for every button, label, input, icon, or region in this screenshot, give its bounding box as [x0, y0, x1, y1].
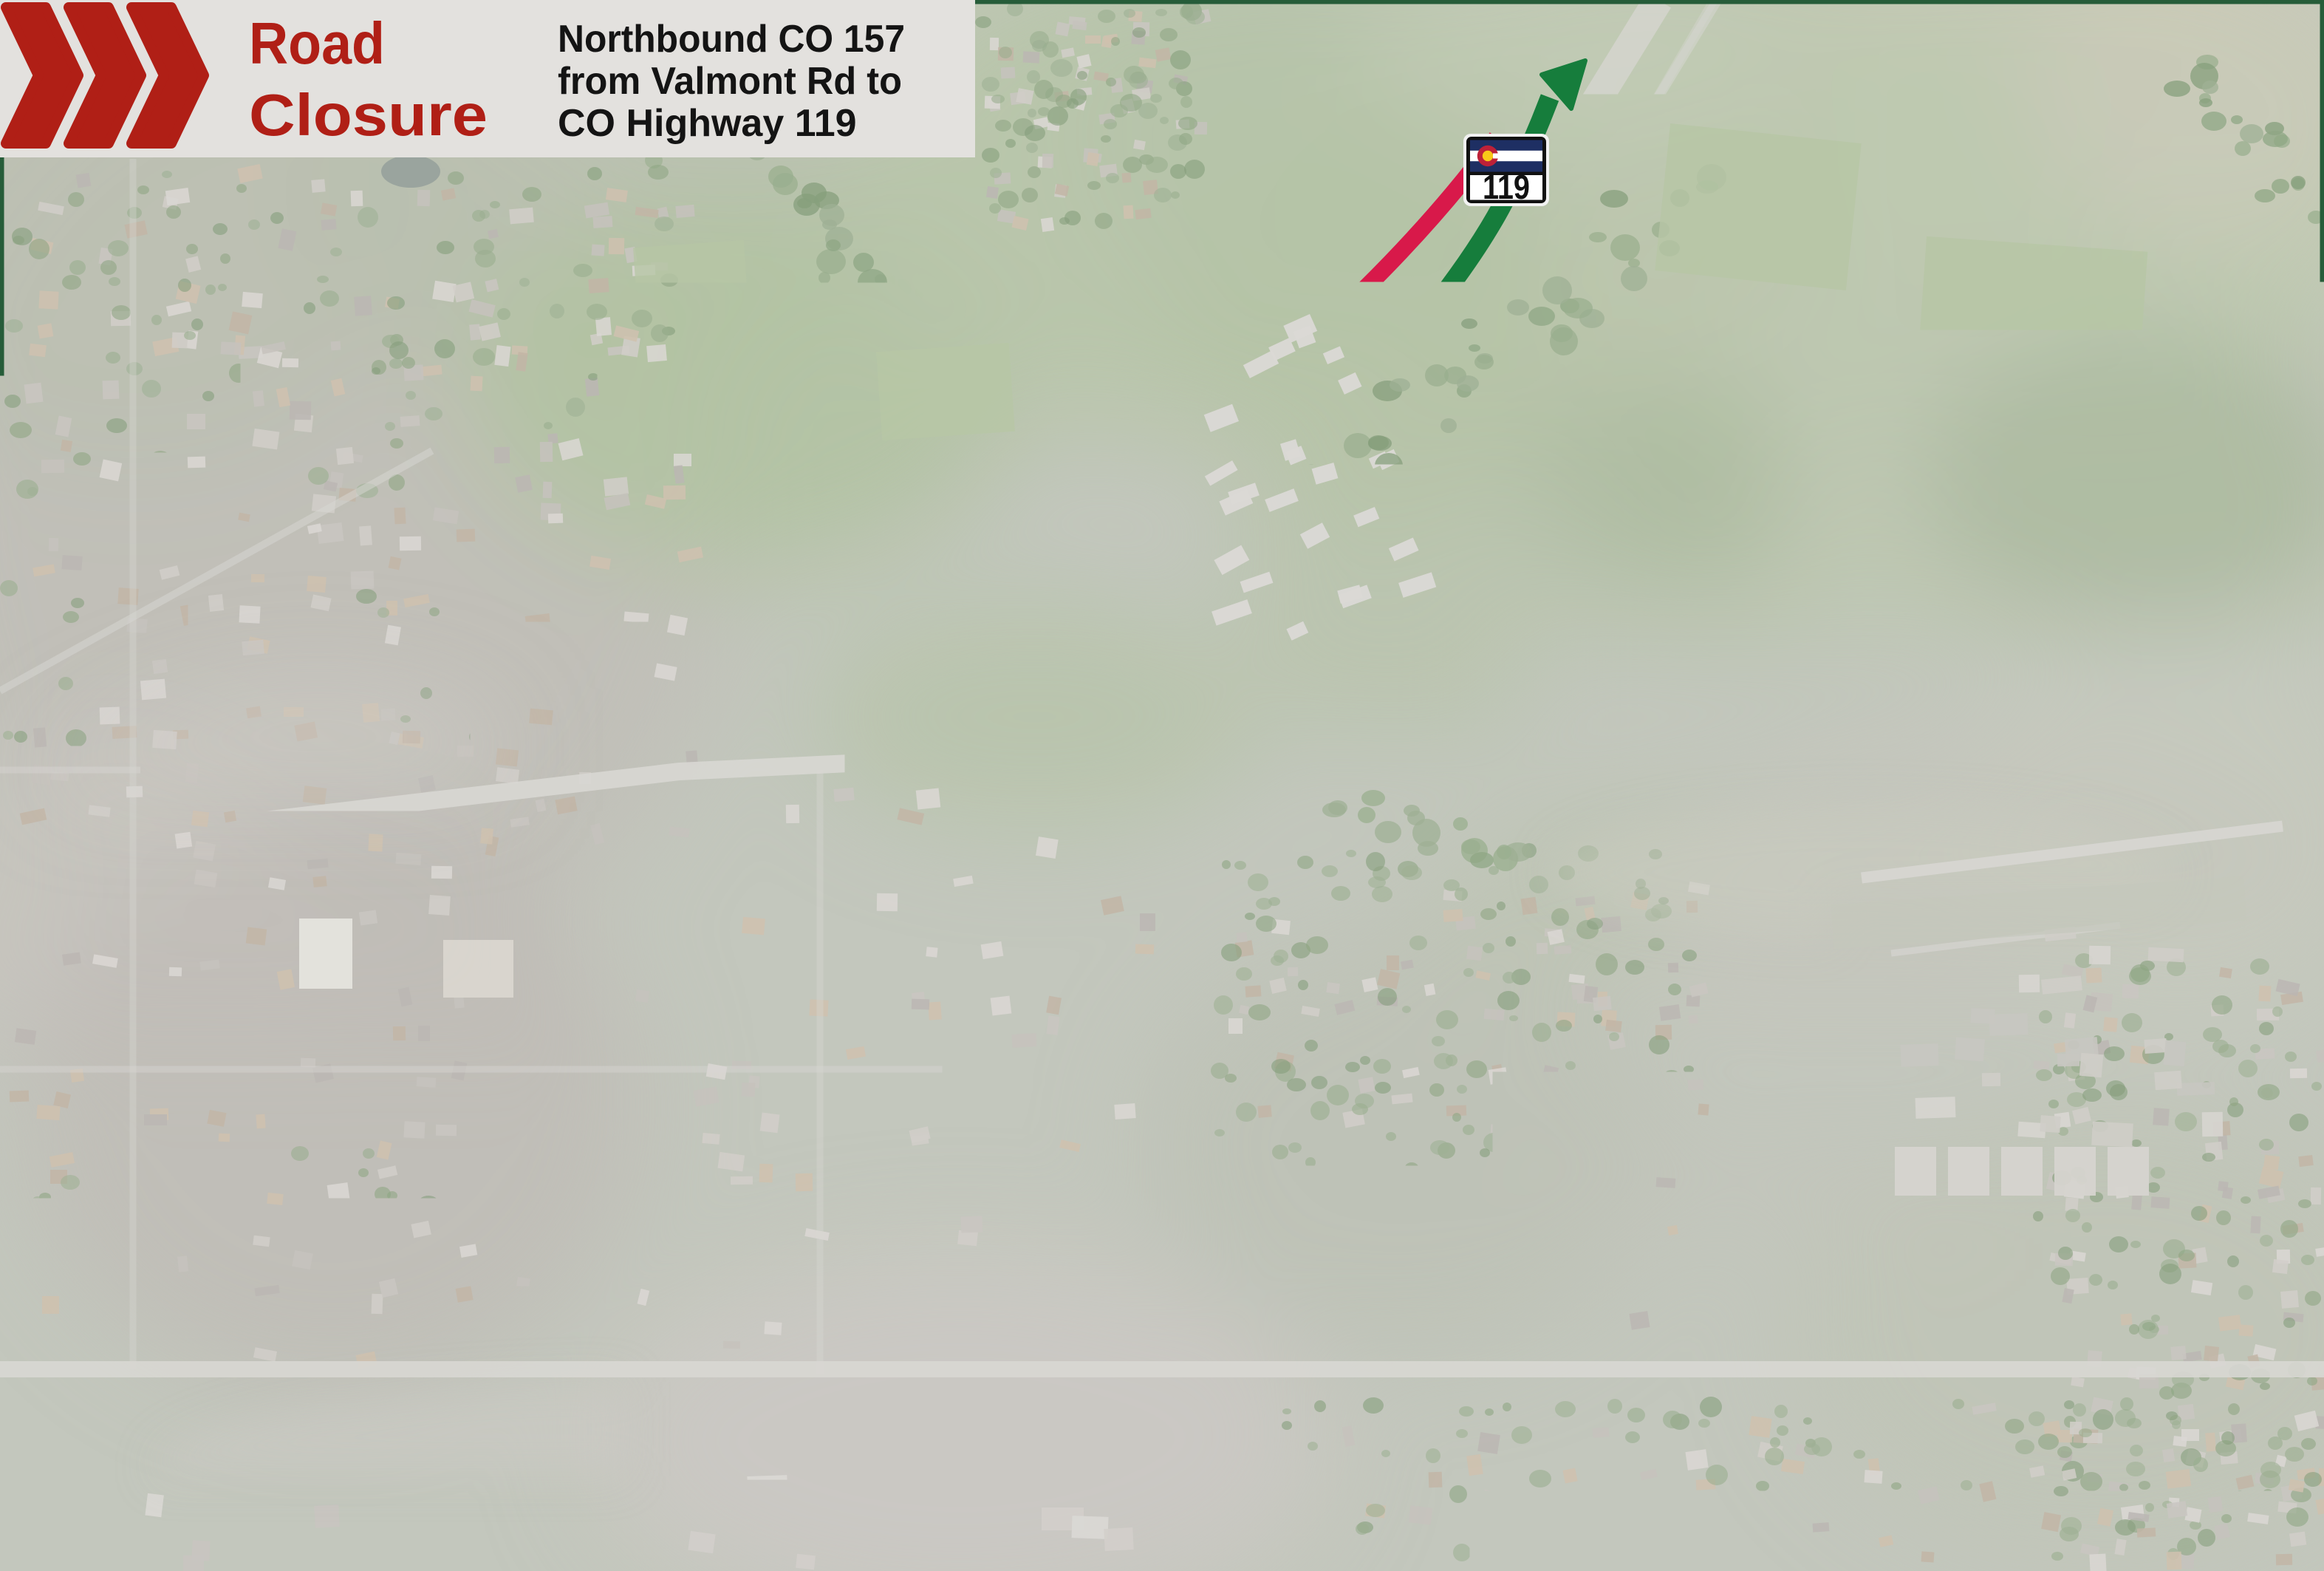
svg-text:Closure: Closure	[249, 82, 488, 148]
svg-text:from Valmont Rd to: from Valmont Rd to	[558, 60, 902, 103]
svg-text:Municipal: Municipal	[1969, 789, 2153, 834]
svg-text:- Closed: - Closed	[1540, 1442, 1688, 1488]
svg-text:Valmont Rd: Valmont Rd	[1587, 1343, 1825, 1398]
svg-text:119: 119	[1483, 168, 1530, 206]
svg-text:119: 119	[889, 755, 937, 794]
svg-text:Airport: Airport	[1995, 829, 2128, 873]
svg-text:30th St: 30th St	[613, 1020, 666, 1176]
svg-text:cotrip.org: cotrip.org	[1800, 1459, 2102, 1527]
svg-text:Road: Road	[249, 10, 385, 76]
svg-text:- Detour: - Detour	[1540, 1512, 1696, 1558]
svg-text:CO Highway 119: CO Highway 119	[558, 102, 857, 145]
svg-text:Boulder: Boulder	[1986, 749, 2136, 794]
svg-text:Northbound CO 157: Northbound CO 157	[558, 18, 905, 61]
svg-text:157: 157	[1141, 995, 1193, 1033]
